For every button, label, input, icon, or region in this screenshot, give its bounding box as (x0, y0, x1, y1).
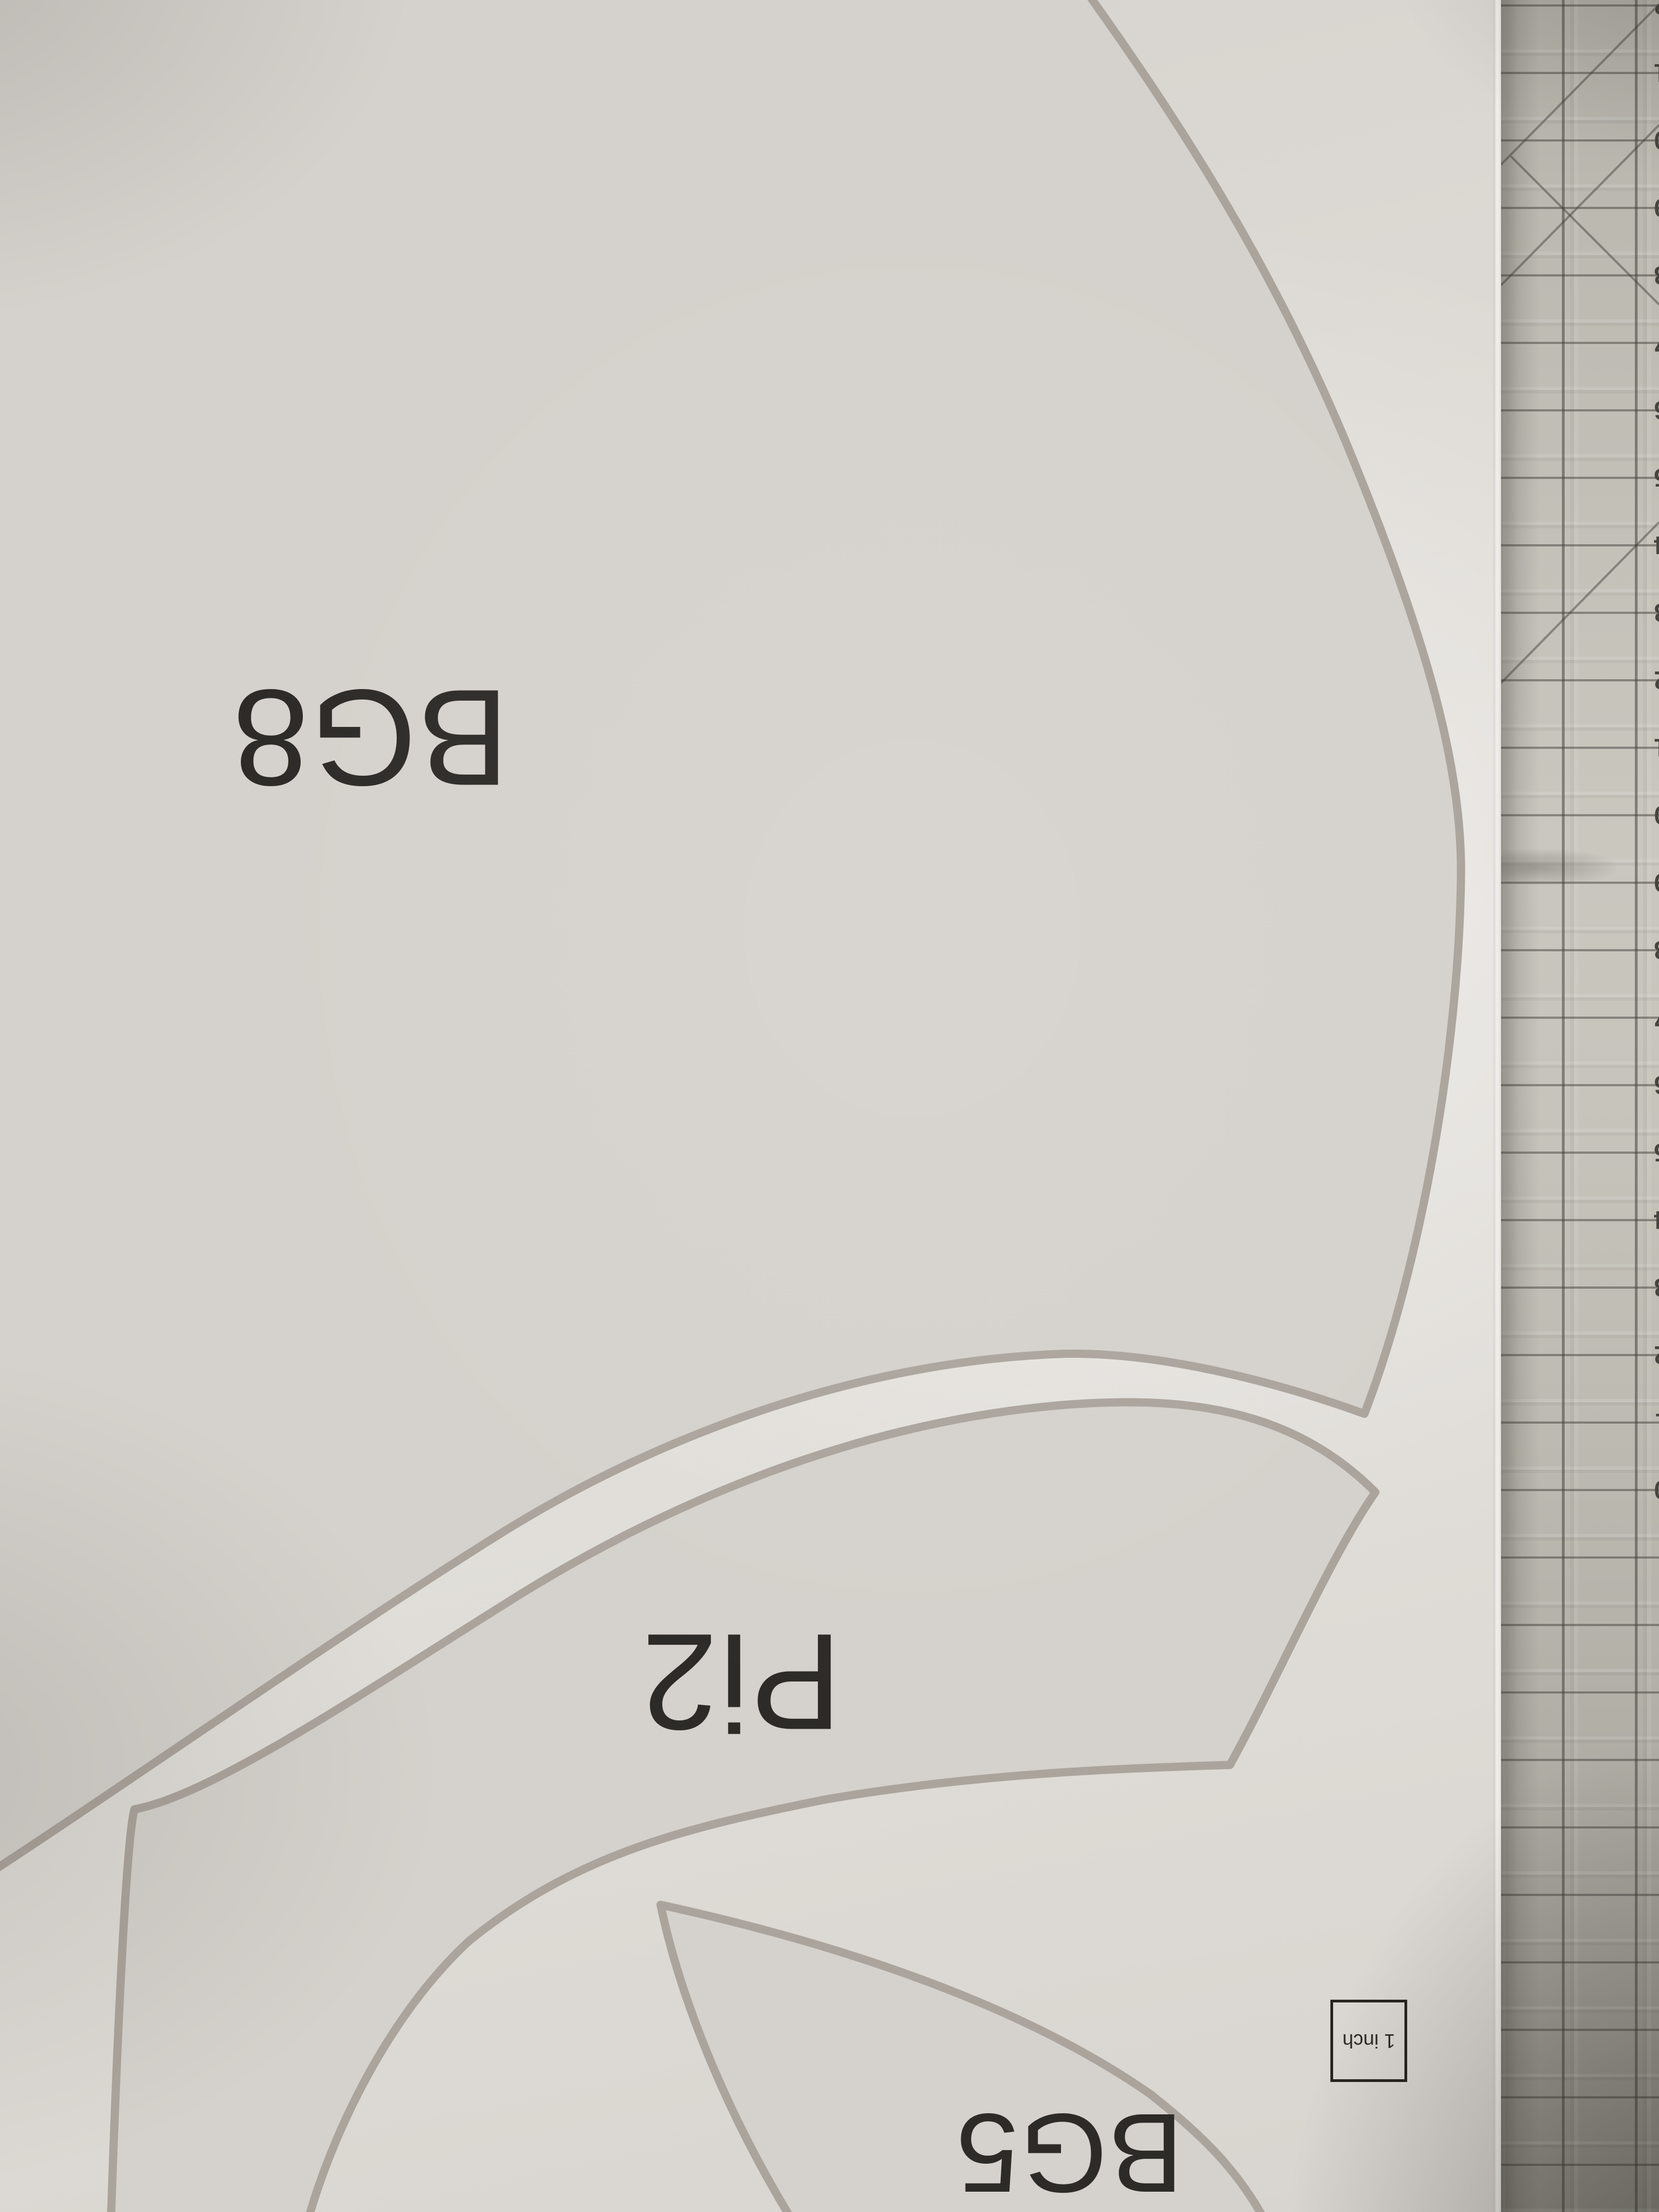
cutting-mat-ruler: 3231302928272625242322212019181716151413… (1501, 0, 1659, 2212)
mat-ruler-number: 20 (1637, 800, 1659, 831)
mat-ruler-number: 14 (1637, 1205, 1659, 1235)
mat-ruler-number: 23 (1637, 597, 1659, 628)
mat-ruler-number: 29 (1637, 193, 1659, 223)
mat-ruler-number: 3 (1637, 1947, 1659, 1978)
mat-ruler-number: 10 (1637, 1475, 1659, 1505)
mat-ruler-number: 6 (1637, 1745, 1659, 1775)
mat-ruler-number: 0 (1637, 2149, 1659, 2180)
mat-grid-vline (1562, 0, 1565, 2212)
mat-ruler-number: 9 (1637, 1542, 1659, 1573)
mat-ruler-number: 28 (1637, 260, 1659, 291)
mat-ruler-number: 16 (1637, 1070, 1659, 1101)
mat-edge-shadow (1501, 0, 1539, 2212)
mat-ruler-number: 32 (1637, 0, 1659, 21)
photo-pattern-on-cutting-mat: BG8 Pi2 BG5 1 inch 323130292827262524232… (0, 0, 1659, 2212)
mat-ruler-number: 31 (1637, 58, 1659, 88)
scale-box: 1 inch (1330, 2000, 1407, 2082)
mat-ruler-number: 15 (1637, 1137, 1659, 1168)
mat-ruler-number: 5 (1637, 1812, 1659, 1843)
piece-label-bg8: BG8 (232, 659, 509, 817)
mat-ruler-number: 18 (1637, 935, 1659, 966)
mat-ruler-number: 4 (1637, 1880, 1659, 1910)
scale-box-label: 1 inch (1342, 2029, 1395, 2052)
mat-ruler-number: 27 (1637, 328, 1659, 358)
piece-label-bg5: BG5 (955, 2088, 1183, 2212)
mat-ruler-number: 25 (1637, 462, 1659, 493)
mat-ruler-number: 17 (1637, 1002, 1659, 1033)
mat-ruler-number: 7 (1637, 1677, 1659, 1708)
mat-ruler-number: 19 (1637, 867, 1659, 898)
mat-ruler-number: 30 (1637, 125, 1659, 156)
mat-ruler-number: 21 (1637, 732, 1659, 763)
mat-ruler-number: 8 (1637, 1610, 1659, 1640)
mat-ruler-number: 1 (1637, 2082, 1659, 2113)
pattern-piece-outlines (0, 0, 1500, 2212)
mat-ruler-number: 22 (1637, 665, 1659, 696)
mat-ruler-number: 24 (1637, 530, 1659, 561)
mat-ruler-number: 12 (1637, 1340, 1659, 1370)
mat-ruler-number: 11 (1637, 1407, 1659, 1438)
piece-label-pi2: Pi2 (640, 1604, 842, 1761)
mat-ruler-number: 26 (1637, 395, 1659, 426)
paper-edge (1493, 0, 1501, 2212)
mat-ruler-number: 2 (1637, 2015, 1659, 2045)
mat-ruler-number: 13 (1637, 1272, 1659, 1303)
pattern-paper-sheet: BG8 Pi2 BG5 1 inch (0, 0, 1500, 2212)
